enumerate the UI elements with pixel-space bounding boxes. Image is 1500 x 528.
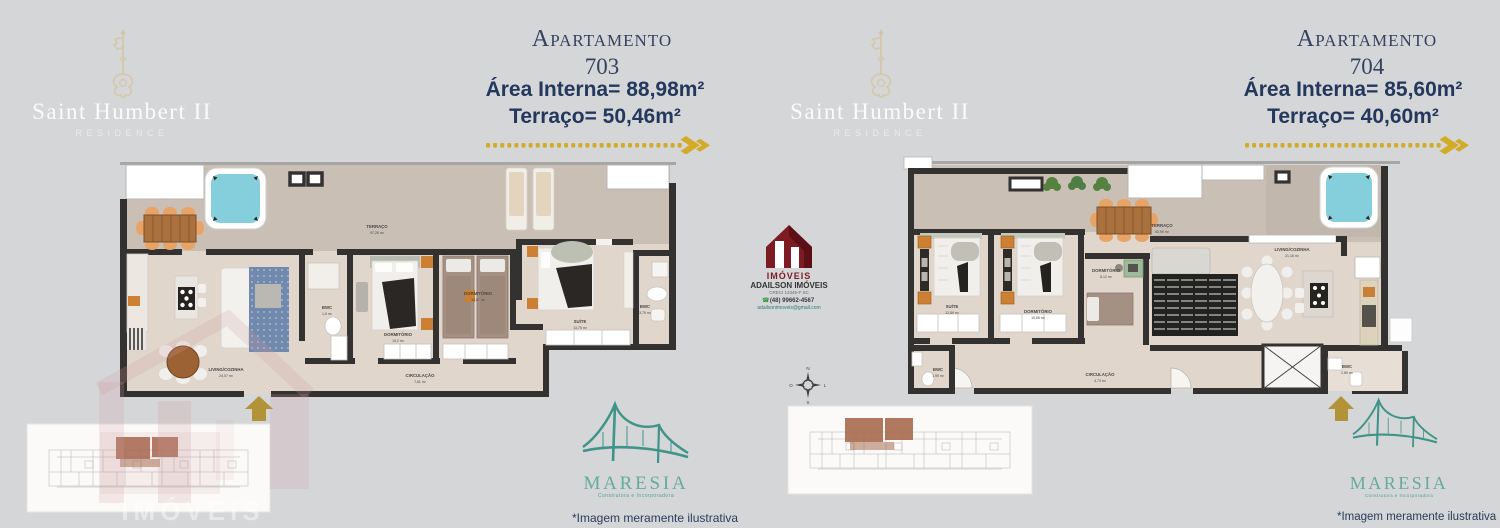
svg-text:O: O	[789, 383, 793, 388]
svg-text:S: S	[806, 400, 809, 405]
svg-text:adailsonimoveis@gmail.com: adailsonimoveis@gmail.com	[757, 305, 820, 311]
svg-text:MARESIA: MARESIA	[583, 473, 688, 494]
svg-text:Construtora e Incorporadora: Construtora e Incorporadora	[598, 493, 674, 499]
svg-text:L: L	[824, 383, 827, 388]
svg-text:IMÓVEIS: IMÓVEIS	[121, 496, 264, 526]
svg-text:N: N	[806, 366, 809, 371]
svg-text:ADAILSON IMÓVEIS: ADAILSON IMÓVEIS	[750, 281, 828, 290]
svg-text:CRECI 12345-F SC: CRECI 12345-F SC	[769, 290, 809, 295]
svg-text:(48) 99662-4567: (48) 99662-4567	[770, 298, 815, 304]
svg-text:MARESIA: MARESIA	[1350, 473, 1449, 493]
svg-text:IMÓVEIS: IMÓVEIS	[767, 270, 812, 281]
svg-text:☎: ☎	[762, 297, 770, 304]
svg-text:Construtora e Incorporadora: Construtora e Incorporadora	[1365, 493, 1434, 498]
